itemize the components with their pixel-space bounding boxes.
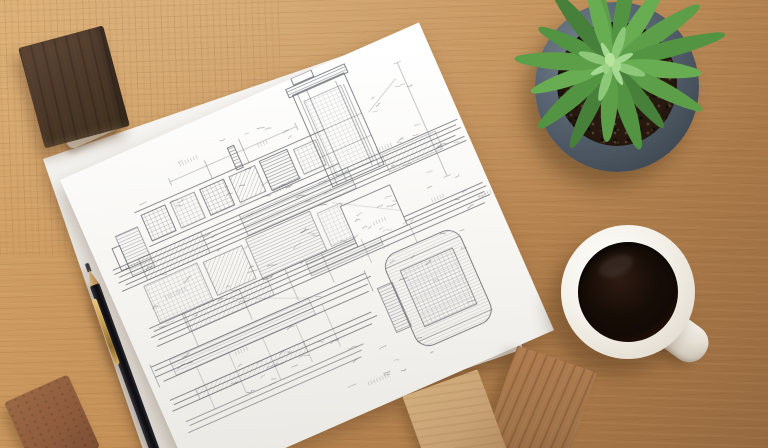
coffee-glare-highlight [596, 250, 637, 282]
wood-sample-red [4, 374, 100, 448]
coffee-mug [561, 225, 695, 359]
desk-scene [0, 0, 768, 448]
leaf-rosette [514, 0, 727, 152]
pencil-lead-tip [85, 263, 92, 273]
walnut-block [18, 25, 130, 148]
plant-leaves [480, 0, 768, 232]
coffee-surface [578, 242, 678, 342]
